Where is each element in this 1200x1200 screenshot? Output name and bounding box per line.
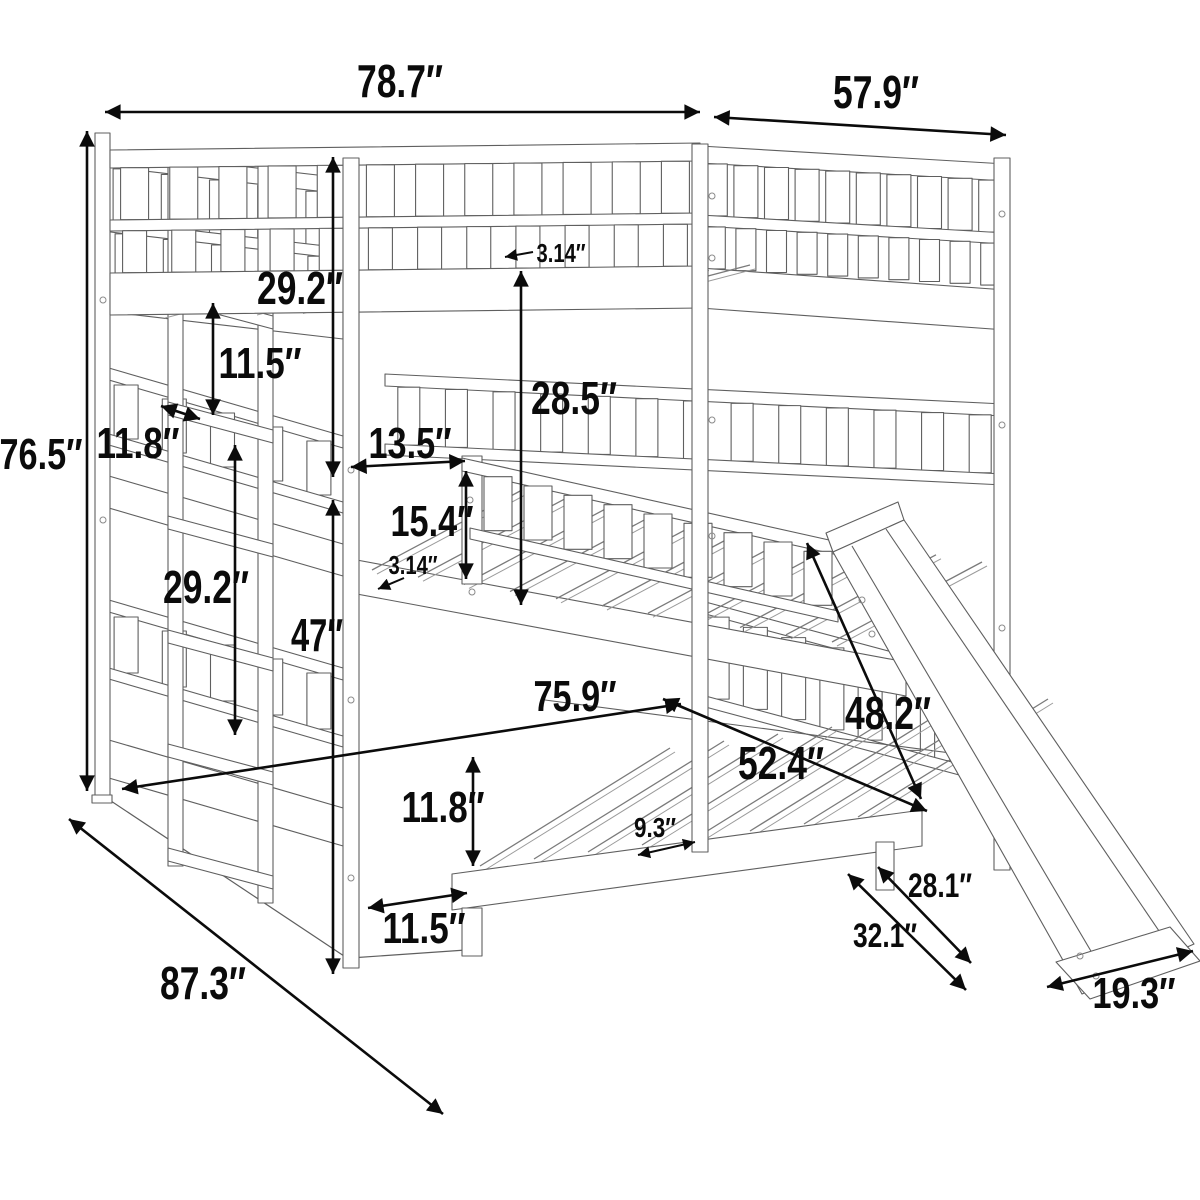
dim-label-slide-length: 48.2″ — [845, 687, 931, 739]
middle-guard-slat — [564, 495, 592, 549]
middle-bunk-back-slat — [922, 413, 944, 471]
dim-label-ladder-step-spacing: 11.5″ — [219, 339, 302, 388]
dim-label-bottom-bunk-width: 52.4″ — [738, 737, 824, 789]
top-bunk-front-slat-2 — [418, 227, 442, 269]
top-bunk-front-mid-rail — [110, 213, 700, 231]
middle-bunk-back-slat — [493, 392, 515, 450]
dim-guard-gap-width: 13.5″ — [351, 419, 465, 468]
top-bunk-front-slat-2 — [172, 230, 196, 272]
bottom-bunk-left-slat — [114, 617, 138, 673]
bunk-bed-diagram-canvas: 78.7″57.9″76.5″29.2″11.5″11.8″13.5″15.4″… — [0, 0, 1200, 1200]
top-bunk-right-slat-2 — [736, 229, 756, 271]
dim-label-slat-thickness-middle: 3.14″ — [389, 550, 438, 580]
top-bunk-front-slat — [416, 164, 444, 216]
dim-label-bunk-clearance: 28.5″ — [531, 372, 617, 424]
middle-bunk-back-slat — [826, 408, 848, 466]
top-bunk-right-slat-2 — [797, 232, 817, 274]
post-front-right — [692, 144, 708, 852]
top-bunk-front-slat — [121, 168, 149, 220]
middle-bunk-back-slat — [731, 403, 753, 461]
dim-bed-height: 76.5″ — [0, 131, 87, 791]
ladder-rung — [168, 848, 273, 889]
dim-bottom-rail-height: 11.8″ — [402, 757, 485, 866]
top-bunk-front-top-rail — [110, 143, 700, 168]
bottom-bunk-front-frame — [452, 810, 922, 910]
dim-label-middle-bunk-height: 47″ — [291, 609, 343, 661]
top-bunk-right-slat — [887, 175, 911, 227]
dim-label-guard-gap-width: 13.5″ — [369, 419, 452, 468]
bottom-bunk-left-frame — [102, 738, 350, 848]
middle-bunk-back-slat — [969, 415, 991, 473]
dim-label-bottom-rail-height: 11.8″ — [402, 783, 485, 832]
middle-bunk-back-slat — [779, 406, 801, 464]
dim-label-bed-length-top: 78.7″ — [357, 55, 443, 107]
top-bunk-front-slat — [268, 166, 296, 218]
top-bunk-right-slat-2 — [828, 234, 848, 276]
dim-label-slat-spacing: 9.3″ — [634, 812, 676, 843]
dim-bed-width-top: 57.9″ — [714, 66, 1006, 135]
dim-label-guard-rail-height: 15.4″ — [391, 497, 474, 546]
top-bunk-front-slat-2 — [123, 231, 147, 273]
dim-label-total-depth-diagonal: 87.3″ — [160, 957, 246, 1009]
middle-bunk-back-slat — [636, 399, 658, 457]
top-bunk-front-slat — [219, 167, 247, 219]
middle-guard-slat — [644, 514, 672, 568]
top-bunk-right-slat-2 — [950, 241, 970, 283]
middle-guard-slat — [604, 505, 632, 559]
top-bunk-front-slat — [465, 164, 493, 216]
top-bunk-front-slat-2 — [467, 227, 491, 269]
top-bunk-right-slat-2 — [858, 236, 878, 278]
dim-label-top-rail-height: 29.2″ — [257, 262, 343, 314]
post-front-left — [343, 158, 359, 968]
middle-guard-slat — [764, 542, 792, 596]
top-bunk-front-slat-2 — [614, 225, 638, 267]
dim-label-slide-foot-offset: 28.1″ — [908, 867, 972, 905]
dimension-diagram: 78.7″57.9″76.5″29.2″11.5″11.8″13.5″15.4″… — [0, 0, 1200, 1200]
middle-guard-slat — [804, 551, 832, 605]
bottom-bunk-left-slat — [307, 673, 331, 729]
top-bunk-front-slat-2 — [663, 224, 687, 266]
top-bunk-right-slat — [826, 171, 850, 223]
bottom-bunk-leg-right — [876, 842, 894, 890]
screw-dot — [709, 417, 715, 423]
middle-guard-slat — [524, 486, 552, 540]
dim-arrow-total-depth-diagonal — [69, 819, 443, 1114]
dim-label-ladder-step-depth: 11.8″ — [97, 419, 180, 468]
post-foot — [92, 795, 112, 803]
screw-dot — [869, 631, 875, 637]
dim-label-slide-width: 19.3″ — [1093, 969, 1176, 1018]
top-bunk-right-slat — [918, 177, 942, 229]
top-bunk-front-slat — [612, 162, 640, 214]
dim-label-middle-rail-height: 29.2″ — [163, 561, 249, 613]
top-bunk-right-slat — [948, 178, 972, 230]
top-bunk-front-slat — [661, 161, 689, 213]
top-bunk-right-slat — [734, 166, 758, 218]
top-bunk-right-slat — [795, 169, 819, 221]
dim-arrow-bed-width-top — [714, 117, 1006, 135]
dim-total-depth-diagonal: 87.3″ — [69, 819, 443, 1114]
top-bunk-front-slat-2 — [221, 230, 245, 272]
top-bunk-front-slat-2 — [368, 228, 392, 270]
dim-label-slat-thickness-top: 3.14″ — [537, 238, 586, 268]
middle-guard-slat — [724, 533, 752, 587]
top-bunk-front-slat — [563, 162, 591, 214]
top-bunk-right-slat-2 — [767, 231, 787, 273]
dim-label-bottom-bunk-length: 75.9″ — [534, 672, 617, 721]
top-bunk-right-slat — [765, 168, 789, 220]
middle-guard-slat — [484, 477, 512, 531]
top-bunk-right-slat — [856, 173, 880, 225]
top-bunk-front-slat — [366, 165, 394, 217]
middle-bunk-back-slat — [874, 410, 896, 468]
top-bunk-front-slat — [514, 163, 542, 215]
dim-label-bed-height: 76.5″ — [0, 430, 83, 479]
top-bunk-right-slat-2 — [889, 238, 909, 280]
top-bunk-right-slat-2 — [920, 240, 940, 282]
top-bunk-front-slat — [317, 165, 345, 217]
middle-bunk-left-slat — [307, 441, 331, 495]
top-bunk-front-slat — [170, 167, 198, 219]
dim-label-bed-width-top: 57.9″ — [833, 66, 919, 118]
dim-bed-length-top: 78.7″ — [105, 55, 700, 112]
dim-label-ladder-width: 11.5″ — [383, 904, 466, 953]
top-bunk-front-frame — [110, 266, 700, 315]
dim-label-slide-foot-depth: 32.1″ — [853, 917, 917, 955]
